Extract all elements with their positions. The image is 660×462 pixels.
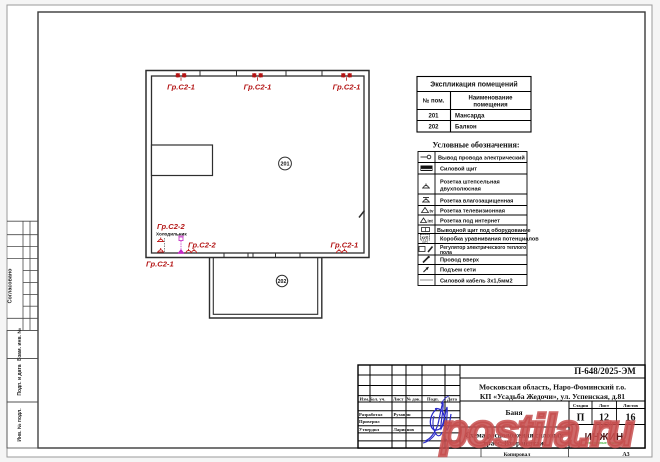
svg-text:Дата: Дата [447, 397, 458, 402]
svg-text:КУП: КУП [422, 240, 427, 244]
svg-text:Силовой щит: Силовой щит [440, 166, 477, 173]
svg-text:Рузавин: Рузавин [394, 412, 411, 417]
svg-text:пола: пола [440, 250, 452, 256]
svg-text:Подъем сети: Подъем сети [440, 268, 477, 274]
svg-text:Гр.С2-1: Гр.С2-1 [146, 260, 174, 269]
svg-text:Розетка телевизионная: Розетка телевизионная [440, 209, 505, 215]
svg-text:Провод вверх: Провод вверх [440, 258, 480, 264]
svg-text:Гр.С2-1: Гр.С2-1 [333, 83, 361, 92]
svg-text:КУП: КУП [422, 236, 429, 240]
svg-text:202: 202 [428, 125, 439, 131]
svg-text:Гр.С2-2: Гр.С2-2 [188, 241, 216, 250]
svg-text:Инв. № подл.: Инв. № подл. [17, 408, 23, 442]
svg-text:postila.ru: postila.ru [440, 405, 634, 456]
svg-text:Гр.С2-1: Гр.С2-1 [167, 83, 195, 92]
svg-text:Розетка штепсельная: Розетка штепсельная [440, 180, 500, 186]
svg-text:Мансарда: Мансарда [455, 114, 485, 120]
svg-text:int: int [428, 219, 434, 224]
svg-text:201: 201 [428, 114, 439, 120]
svg-text:Разработал: Разработал [359, 412, 383, 417]
svg-text:Выводной щит под оборудование: Выводной щит под оборудование [437, 227, 531, 234]
svg-text:П-648/2025-ЭМ: П-648/2025-ЭМ [574, 366, 636, 376]
svg-text:Подп.: Подп. [427, 397, 439, 402]
svg-text:помещения: помещения [473, 103, 508, 109]
svg-text:Гр.С2-2: Гр.С2-2 [157, 222, 185, 231]
svg-text:№ пом.: № пом. [423, 98, 445, 105]
svg-text:Согласовано: Согласовано [8, 268, 14, 304]
svg-text:Балкон: Балкон [455, 125, 477, 131]
svg-text:Проверил: Проверил [359, 419, 380, 424]
svg-text:Изм.Кол. уч.: Изм.Кол. уч. [360, 397, 386, 402]
svg-text:Ларионов: Ларионов [394, 427, 415, 432]
svg-text:Коробка уравнивания потенциало: Коробка уравнивания потенциалов [440, 236, 539, 243]
svg-text:Утвердил: Утвердил [359, 427, 380, 432]
svg-text:Условные обозначения:: Условные обозначения: [432, 141, 519, 150]
svg-text:Регулятор электрического тепло: Регулятор электрического теплого [440, 245, 526, 251]
svg-text:201: 201 [281, 162, 290, 168]
svg-text:Гр.С2-1: Гр.С2-1 [331, 241, 359, 250]
svg-text:Московская область, Наро-Фомин: Московская область, Наро-Фоминский г.о. [479, 383, 626, 392]
svg-text:Розетка влагозащищенная: Розетка влагозащищенная [440, 199, 513, 205]
svg-text:Лист: Лист [393, 397, 404, 402]
svg-text:Экспликация помещений: Экспликация помещений [430, 81, 517, 89]
svg-text:Силовой кабель 3х1,5мм2: Силовой кабель 3х1,5мм2 [440, 278, 513, 285]
svg-text:Гр.С2-1: Гр.С2-1 [244, 83, 272, 92]
svg-text:КП «Усадьба Жедочи», ул. Успен: КП «Усадьба Жедочи», ул. Успенская, д.81 [480, 392, 625, 401]
svg-text:Взам. инв. №: Взам. инв. № [17, 328, 23, 361]
svg-text:№ док.: № док. [407, 397, 421, 402]
svg-text:Вывод провода электрический: Вывод провода электрический [438, 155, 525, 162]
svg-text:Розетка под интернет: Розетка под интернет [440, 219, 500, 225]
svg-text:202: 202 [278, 279, 287, 285]
svg-text:tv: tv [430, 209, 434, 214]
svg-text:Подп. и дата: Подп. и дата [17, 364, 23, 395]
svg-text:двухполюсная: двухполюсная [440, 187, 481, 193]
svg-text:Наименование: Наименование [468, 96, 513, 102]
